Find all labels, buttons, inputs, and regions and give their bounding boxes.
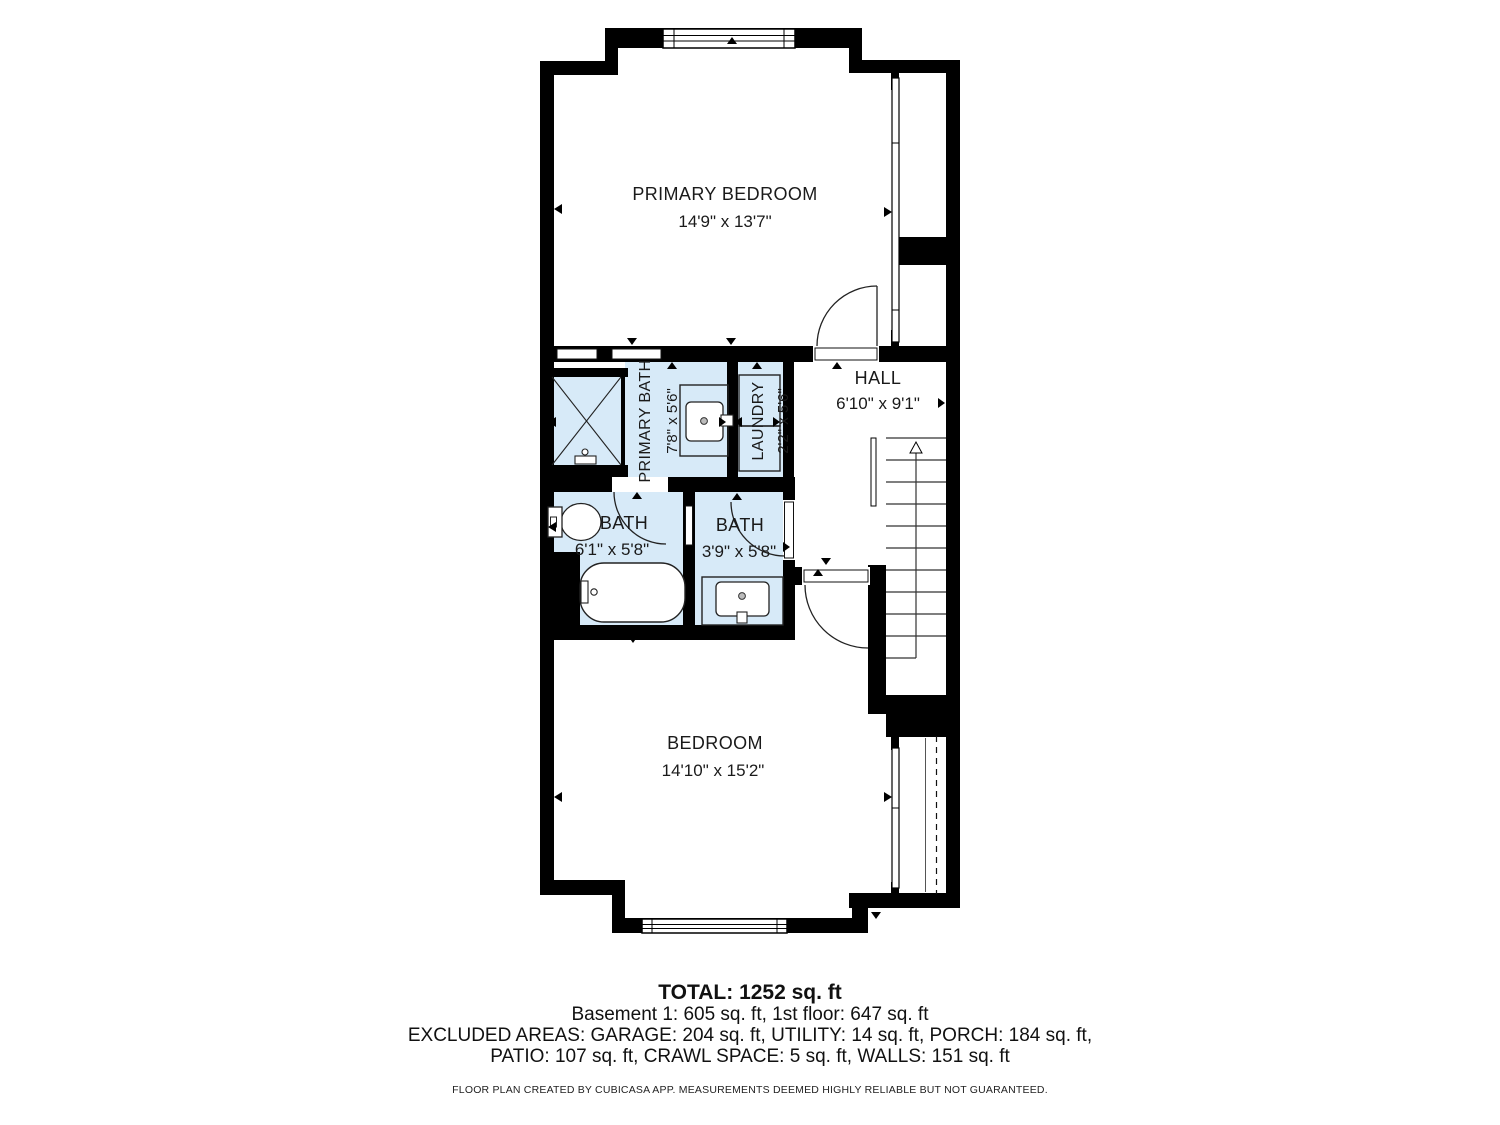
total-area: TOTAL: 1252 sq. ft [0, 982, 1500, 1004]
window-bottom-bay [642, 919, 787, 933]
disclaimer: FLOOR PLAN CREATED BY CUBICASA APP. MEAS… [0, 1084, 1500, 1096]
room-dims-hall: 6'10" x 9'1" [836, 394, 920, 413]
wall-window-leaf-b [612, 349, 661, 359]
door-arc-primary-bedroom [817, 286, 877, 346]
door-arc-bedroom [805, 585, 868, 648]
wall-window-leaf-a [557, 349, 597, 359]
floor-plan: PRIMARY BEDROOM 14'9" x 13'7" HALL 6'10"… [0, 0, 1500, 1125]
excluded-areas-line2: PATIO: 107 sq. ft, CRAWL SPACE: 5 sq. ft… [0, 1046, 1500, 1067]
porch-lines [926, 736, 937, 894]
bathtub-icon [580, 563, 685, 622]
floor-areas: Basement 1: 605 sq. ft, 1st floor: 647 s… [0, 1004, 1500, 1025]
room-dims-bath2: 3'9" x 5'8" [702, 542, 776, 561]
excluded-areas-line1: EXCLUDED AREAS: GARAGE: 204 sq. ft, UTIL… [0, 1025, 1500, 1046]
room-dims-primary-bedroom: 14'9" x 13'7" [678, 212, 771, 231]
room-label-laundry: LAUNDRY [750, 382, 767, 461]
window-top [663, 29, 795, 48]
floor-plan-page: PRIMARY BEDROOM 14'9" x 13'7" HALL 6'10"… [0, 0, 1500, 1125]
stairs-rail [871, 438, 876, 506]
room-label-primary-bedroom: PRIMARY BEDROOM [632, 184, 817, 204]
room-label-bedroom: BEDROOM [667, 733, 763, 753]
room-label-primary-bath: PRIMARY BATH [637, 359, 654, 482]
door-leaf-primary-bedroom [815, 348, 877, 360]
room-dims-laundry: 2'2" x 5'6" [775, 388, 792, 454]
shower-valve-icon [575, 456, 596, 464]
room-dims-bedroom: 14'10" x 15'2" [662, 761, 765, 780]
window-right-primary-bedroom [892, 78, 899, 342]
toilet-icon [548, 504, 601, 541]
area-summary: TOTAL: 1252 sq. ft Basement 1: 605 sq. f… [0, 982, 1500, 1096]
window-right-bedroom [892, 748, 899, 888]
door-leaf-baths-divider [686, 506, 693, 545]
room-dims-bath1: 6'1" x 5'8" [575, 540, 649, 559]
room-dims-primary-bath: 7'8" x 5'6" [664, 388, 681, 454]
room-label-hall: HALL [855, 368, 902, 388]
stairs-up-arrow-icon [910, 442, 922, 453]
room-label-bath1: BATH [600, 513, 648, 533]
room-label-bath2: BATH [716, 515, 764, 535]
